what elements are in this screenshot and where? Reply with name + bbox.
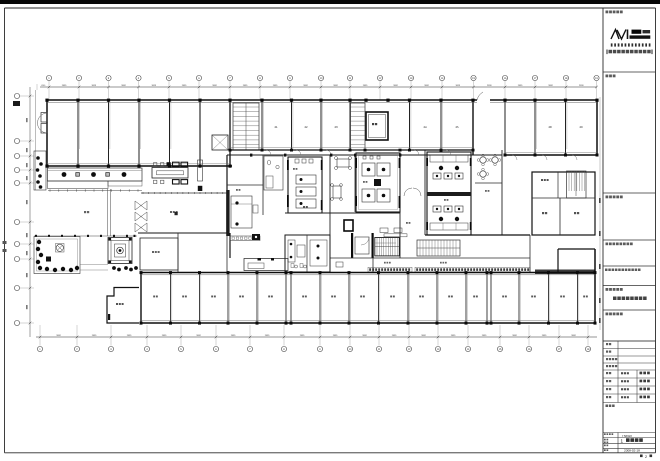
svg-text:22: 22 <box>304 125 308 129</box>
svg-text:21: 21 <box>274 125 278 129</box>
svg-text:2: 2 <box>645 455 647 459</box>
svg-text:2008-02-18: 2008-02-18 <box>624 449 640 453</box>
svg-text:1: 1 <box>621 438 624 443</box>
svg-text:23: 23 <box>334 125 338 129</box>
svg-text:28: 28 <box>548 125 552 129</box>
svg-text:29: 29 <box>579 125 583 129</box>
svg-text:24: 24 <box>423 125 427 129</box>
svg-text:TS0310: TS0310 <box>622 434 632 438</box>
svg-text:25: 25 <box>455 125 459 129</box>
